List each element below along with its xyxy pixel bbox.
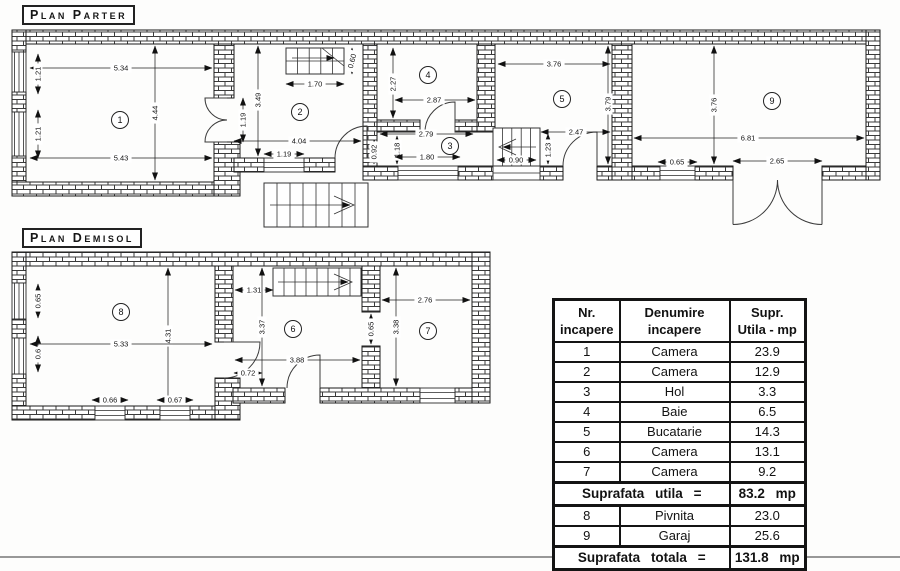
dimension: 5.33	[30, 340, 212, 349]
room-areas-table: Nr.incapere Denumireincapere Supr.Utila …	[552, 298, 807, 571]
col-header-nr: Nr.incapere	[554, 300, 620, 343]
dim-label: 3.49	[254, 93, 263, 108]
cell-nr: 8	[554, 506, 620, 527]
cell-nr: 1	[554, 342, 620, 362]
room-number: 5	[554, 91, 571, 108]
dim-label: 3.37	[258, 320, 267, 335]
dim-label: 4.44	[151, 106, 160, 121]
room-number: 2	[292, 104, 309, 121]
dim-label: 5.33	[114, 340, 129, 349]
dim-label: 1.21	[34, 67, 43, 82]
dim-label: 2.87	[427, 96, 442, 105]
dim-label: 3.88	[290, 356, 305, 365]
dimension: 0.60	[345, 48, 359, 74]
dim-label: 0.67	[168, 396, 183, 405]
dimension: 1.19	[239, 98, 248, 142]
dim-label: 2.65	[770, 157, 785, 166]
dimension: 1.21	[34, 54, 43, 94]
cell-area: 13.1	[730, 442, 806, 462]
dimension: 1.21	[34, 110, 43, 158]
table-row: 2Camera12.9	[554, 362, 806, 382]
dim-label: 1.80	[420, 153, 435, 162]
room-number-label: 9	[769, 96, 774, 106]
cell-name: Camera	[620, 362, 730, 382]
dimension: 3.38	[392, 268, 401, 386]
room-number-label: 5	[559, 94, 564, 104]
cell-nr: 9	[554, 526, 620, 547]
dim-label: 3.76	[710, 98, 719, 113]
dim-label: 0.65	[367, 322, 376, 337]
cell-area: 23.9	[730, 342, 806, 362]
dimension: 0.65	[367, 314, 376, 344]
cell-nr: 3	[554, 382, 620, 402]
cell-name: Baie	[620, 402, 730, 422]
dims-parter: 5.341.214.441.215.431.193.491.700.604.04…	[30, 46, 864, 180]
dimension: 2.76	[382, 296, 470, 305]
cell-area: 6.5	[730, 402, 806, 422]
room-number: 9	[764, 93, 781, 110]
scanned-floor-plan-page: { "titles": { "parter": "Plan Parter", "…	[0, 0, 900, 559]
total-row-label: Suprafata totala =	[554, 547, 730, 570]
dimension: 1.18	[393, 136, 402, 164]
table-row: 1Camera23.9	[554, 342, 806, 362]
room-number-label: 3	[447, 141, 452, 151]
dim-label: 1.18	[393, 143, 402, 158]
cell-area: 9.2	[730, 462, 806, 483]
table-row: 5Bucatarie14.3	[554, 422, 806, 442]
table-row: 3Hol3.3	[554, 382, 806, 402]
dim-label: 1.21	[34, 127, 43, 142]
dim-label: 5.34	[114, 64, 129, 73]
dim-label: 2.47	[569, 128, 584, 137]
dimension: 1.19	[264, 150, 304, 159]
cell-area: 25.6	[730, 526, 806, 547]
dimension: 2.65	[733, 157, 822, 166]
cell-area: 12.9	[730, 362, 806, 382]
room-number-label: 7	[425, 326, 430, 336]
dim-label: 1.19	[277, 150, 292, 159]
dim-label: 3.38	[392, 320, 401, 335]
dimension: 2.47	[541, 128, 610, 137]
subtotal-row-value: 83.2 mp	[730, 483, 806, 506]
room-number-label: 8	[118, 307, 123, 317]
walls-demisol	[12, 252, 490, 420]
dim-label: 6.81	[741, 134, 756, 143]
dim-label: 4.31	[164, 329, 173, 344]
cell-name: Bucatarie	[620, 422, 730, 442]
dimension: 5.34	[30, 64, 212, 73]
cell-nr: 2	[554, 362, 620, 382]
room-number: 6	[285, 321, 302, 338]
cell-name: Garaj	[620, 526, 730, 547]
dimension: 3.88	[235, 356, 360, 365]
dimension: 0.65	[34, 284, 43, 318]
dim-label: 0.6	[34, 349, 43, 359]
dimension: 2.27	[389, 48, 398, 118]
cell-nr: 5	[554, 422, 620, 442]
dimension: 0.72	[234, 369, 262, 378]
room-number: 4	[420, 67, 437, 84]
dim-label: 1.31	[247, 286, 262, 295]
cell-area: 3.3	[730, 382, 806, 402]
stairs-demisol	[273, 268, 361, 296]
dimension: 3.76	[710, 46, 719, 164]
dim-label: 1.23	[544, 143, 553, 158]
dimension: 2.87	[395, 96, 475, 105]
dimension: 0.65	[658, 158, 697, 167]
cell-name: Hol	[620, 382, 730, 402]
room-number: 7	[420, 323, 437, 340]
cell-name: Camera	[620, 342, 730, 362]
cell-nr: 6	[554, 442, 620, 462]
table-row: 8Pivnita23.0	[554, 506, 806, 527]
room-table-body: 1Camera23.92Camera12.93Hol3.34Baie6.55Bu…	[554, 342, 806, 570]
dimension: 4.44	[151, 46, 160, 180]
cell-area: 14.3	[730, 422, 806, 442]
rooms-demisol: 867	[113, 304, 437, 340]
dim-label: 1.70	[308, 80, 323, 89]
dim-label: 2.79	[419, 130, 434, 139]
dim-label: 3.76	[547, 60, 562, 69]
dim-label: 2.76	[418, 296, 433, 305]
table-row: 6Camera13.1	[554, 442, 806, 462]
dimension: 3.49	[254, 46, 263, 156]
table-row: 4Baie6.5	[554, 402, 806, 422]
dim-label: 0.60	[346, 53, 358, 69]
dimension: 0.66	[92, 396, 128, 405]
dimension: 0.6	[34, 336, 43, 372]
dim-label: 2.27	[389, 77, 398, 92]
col-header-suprafata: Supr.Utila - mp	[730, 300, 806, 343]
cell-name: Camera	[620, 442, 730, 462]
dim-label: 0.65	[34, 294, 43, 309]
table-row: 7Camera9.2	[554, 462, 806, 483]
room-number-label: 6	[290, 324, 295, 334]
dimension: 1.70	[286, 80, 344, 89]
subtotal-row-label: Suprafata utila =	[554, 483, 730, 506]
dimension: 1.31	[235, 286, 273, 295]
subtotal-row: Suprafata utila =83.2 mp	[554, 483, 806, 506]
cell-nr: 7	[554, 462, 620, 483]
total-row: Suprafata totala =131.8 mp	[554, 547, 806, 570]
room-number-label: 4	[425, 70, 430, 80]
col-header-denumire: Denumireincapere	[620, 300, 730, 343]
cell-nr: 4	[554, 402, 620, 422]
dim-label: 0.72	[241, 369, 256, 378]
dim-label: 3.79	[604, 97, 613, 112]
cell-name: Camera	[620, 462, 730, 483]
dim-label: 4.04	[292, 137, 307, 146]
dimension: 3.76	[498, 60, 610, 69]
dimension: 1.23	[544, 134, 553, 164]
room-number: 8	[113, 304, 130, 321]
room-number: 1	[112, 112, 129, 129]
dim-label: 0.90	[509, 156, 524, 165]
total-row-value: 131.8 mp	[730, 547, 806, 570]
room-number: 3	[442, 138, 459, 155]
table-row: 9Garaj25.6	[554, 526, 806, 547]
dimension: 5.43	[30, 154, 212, 163]
dim-label: 0.92	[370, 145, 379, 160]
rooms-parter: 123459	[112, 67, 781, 155]
dim-label: 0.66	[103, 396, 118, 405]
dimension: 6.81	[634, 134, 864, 143]
dim-label: 1.19	[239, 113, 248, 128]
dimension: 0.92	[370, 140, 379, 164]
dim-label: 0.65	[670, 158, 685, 167]
dim-label: 5.43	[114, 154, 129, 163]
dimension: 0.67	[157, 396, 193, 405]
dims-demisol: 0.650.64.315.330.660.671.313.373.880.720…	[30, 268, 470, 405]
room-number-label: 2	[297, 107, 302, 117]
cell-area: 23.0	[730, 506, 806, 527]
room-number-label: 1	[117, 115, 122, 125]
dimension: 4.31	[164, 268, 173, 404]
cell-name: Pivnita	[620, 506, 730, 527]
